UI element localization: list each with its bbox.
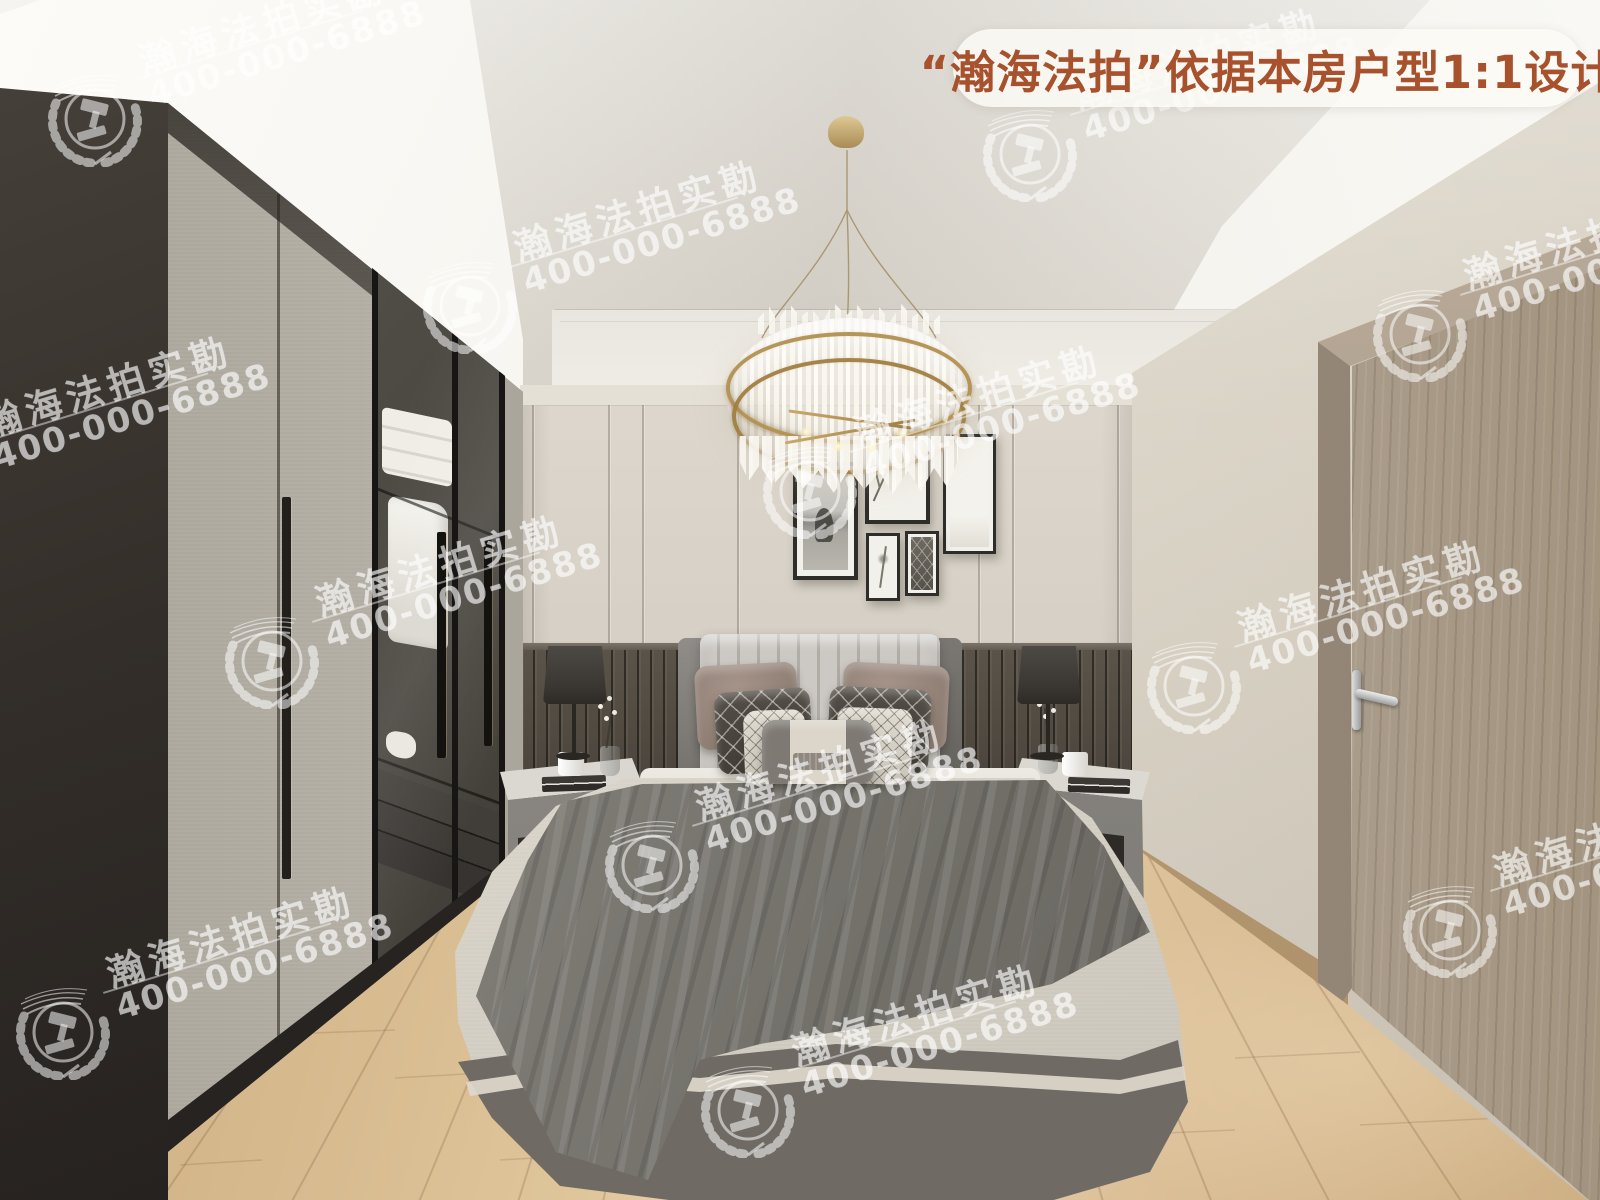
table-lamp-left-shade	[543, 646, 607, 704]
wall-panel-seam	[608, 405, 610, 650]
picture-frame-sprig	[866, 533, 900, 601]
table-lamp-right-shade	[1017, 646, 1081, 704]
bulb-glow	[800, 426, 812, 438]
books-on-nightstand	[1068, 777, 1130, 794]
glass-mullion	[452, 330, 458, 970]
wardrobe-door-handle	[484, 540, 492, 746]
promo-banner: “瀚海法拍”依据本房户型1:1设计	[953, 29, 1583, 107]
flower-vase	[600, 746, 620, 776]
sprig-art	[879, 546, 887, 588]
books-on-nightstand	[542, 775, 606, 792]
wall-panel-seam	[1117, 405, 1119, 650]
wall-panel-seam	[1012, 405, 1014, 650]
bulb-glow	[866, 442, 878, 454]
wall-panel-seam	[642, 405, 644, 650]
table-lamp-right-stem	[1046, 704, 1050, 756]
glass-mullion	[499, 372, 505, 920]
bulb-glow	[896, 428, 908, 440]
door-handle-plate	[1352, 670, 1361, 730]
lumbar-band	[793, 753, 842, 770]
frame-art	[911, 537, 933, 590]
crystal-fringe-bottom	[740, 436, 958, 494]
picture-frame-dark	[905, 531, 939, 596]
table-lamp-left-stem	[572, 704, 576, 756]
wardrobe-door-seam	[277, 194, 280, 1074]
glass-mullion	[372, 268, 378, 1010]
coffee-mug	[1062, 752, 1088, 776]
wardrobe-door-handle	[437, 532, 446, 758]
wardrobe-door-handle	[282, 497, 291, 879]
table-lamp-right-base	[1030, 752, 1064, 760]
bulb-glow	[832, 440, 844, 452]
blossoms	[604, 716, 609, 721]
bedroom-photo: 瀚海法拍实勘400-000-6888瀚海法拍实勘400-000-6888瀚海法拍…	[0, 0, 1600, 1200]
pillow-lumbar	[762, 720, 874, 784]
table-lamp-left-base	[556, 752, 590, 760]
wall-panel-seam	[532, 405, 534, 650]
chandelier	[700, 100, 1000, 500]
tree-silhouette	[822, 516, 834, 540]
banner-text: “瀚海法拍”依据本房户型1:1设计	[920, 36, 1600, 101]
